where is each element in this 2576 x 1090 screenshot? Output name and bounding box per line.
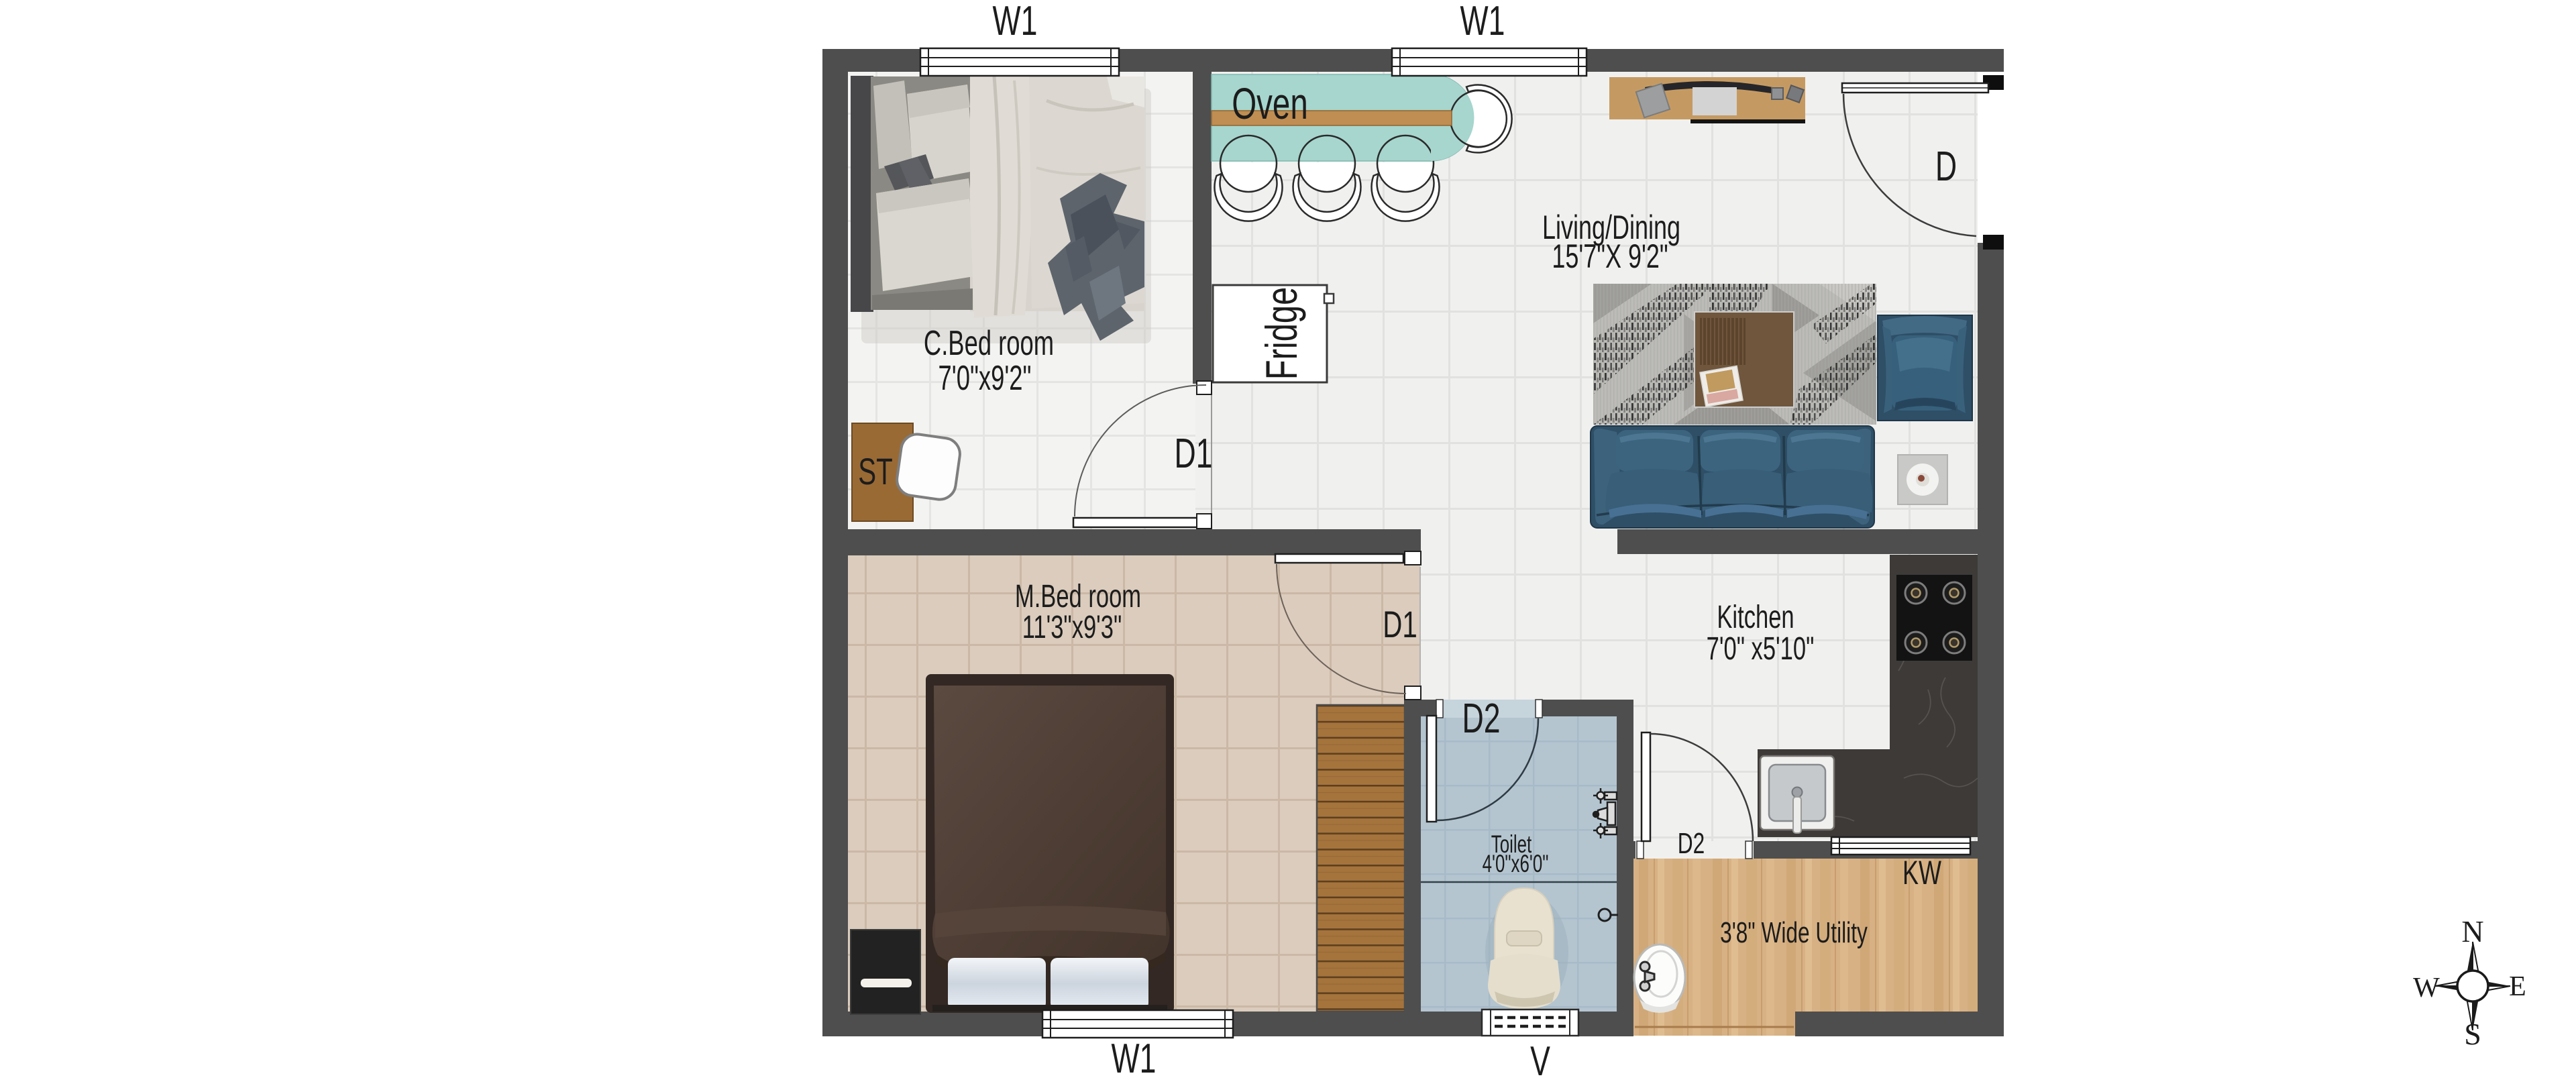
svg-text:C.Bed room: C.Bed room: [924, 323, 1054, 362]
svg-text:N: N: [2461, 914, 2483, 948]
svg-text:W1: W1: [993, 0, 1038, 44]
svg-text:W1: W1: [1460, 0, 1505, 44]
svg-text:3'8" Wide Utility: 3'8" Wide Utility: [1720, 916, 1868, 949]
svg-text:D2: D2: [1462, 696, 1500, 742]
svg-text:D: D: [1935, 144, 1957, 190]
svg-text:W: W: [2413, 973, 2440, 1003]
svg-text:4'0"x6'0": 4'0"x6'0": [1483, 849, 1549, 877]
svg-text:Oven: Oven: [1232, 79, 1308, 128]
svg-text:7'0"x9'2": 7'0"x9'2": [938, 358, 1032, 397]
svg-text:ST: ST: [858, 451, 893, 493]
svg-text:7'0" x5'10": 7'0" x5'10": [1707, 630, 1815, 666]
svg-text:Kitchen: Kitchen: [1717, 598, 1794, 635]
svg-text:D2: D2: [1678, 827, 1705, 860]
svg-text:KW: KW: [1902, 855, 1941, 891]
svg-text:S: S: [2464, 1017, 2481, 1051]
svg-text:Fridge: Fridge: [1257, 287, 1307, 380]
svg-text:D1: D1: [1174, 431, 1212, 477]
svg-text:15'7"X 9'2": 15'7"X 9'2": [1552, 238, 1668, 275]
svg-text:E: E: [2509, 971, 2526, 1002]
svg-text:D1: D1: [1383, 604, 1417, 646]
svg-text:V: V: [1530, 1038, 1550, 1085]
svg-text:11'3"x9'3": 11'3"x9'3": [1022, 608, 1122, 645]
svg-text:W1: W1: [1112, 1036, 1157, 1082]
